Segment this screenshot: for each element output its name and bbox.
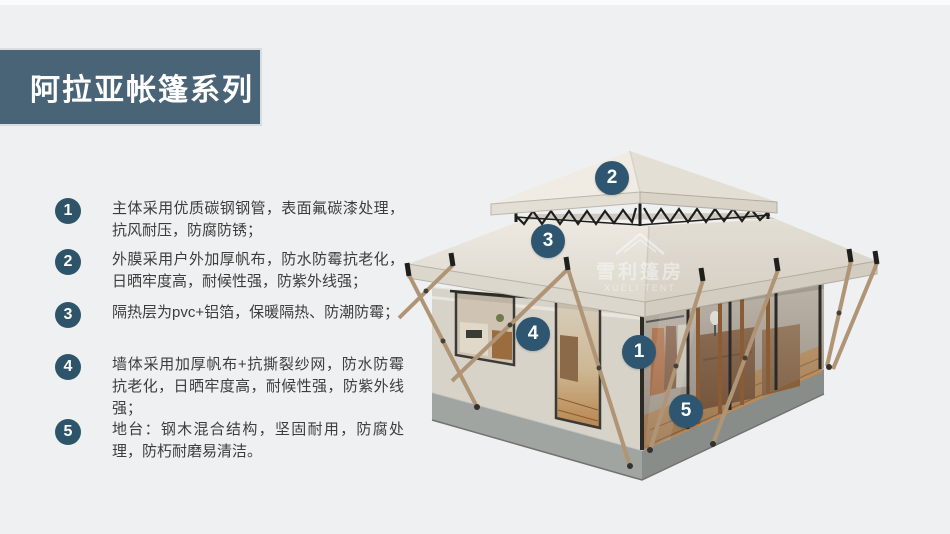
pole-foot [826,364,832,370]
pole-cap [875,251,877,264]
tent-callout-5: 5 [669,394,703,428]
pole-cap [776,258,778,271]
pole-cap [849,249,851,262]
pole-joint [743,356,748,361]
tent-callout-3: 3 [531,224,565,258]
interior-wardrobe [560,335,578,382]
watermark-en-text: XUELI TENT [604,283,676,293]
pole-joint [837,311,842,316]
pole-cap [407,263,409,276]
interior-plant [496,314,504,322]
tent-callout-4: 4 [516,317,550,351]
pole-foot [647,447,653,453]
pole-cap [566,257,568,270]
tent-callout-1: 1 [622,335,656,369]
tent-illustration: 雪利篷房 XUELI TENT [0,0,950,534]
interior-cushion [466,330,482,338]
pole-cap [451,253,453,266]
tent-callout-2: 2 [595,161,629,195]
pole-joint [424,289,429,294]
pole-joint [441,339,446,344]
pole-foot [627,463,633,469]
watermark-cn-text: 雪利篷房 [596,260,684,283]
tent-top-roof [491,151,777,215]
pole-joint [508,323,513,328]
pole-joint [597,366,602,371]
slide: 阿拉亚帐篷系列 1 主体采用优质碳钢钢管，表面氟碳漆处理，抗风耐压，防腐防锈； … [0,0,950,534]
pole-foot [710,441,716,447]
pole-foot [474,404,480,410]
pole-cap [701,268,703,281]
pole-joint [674,364,679,369]
